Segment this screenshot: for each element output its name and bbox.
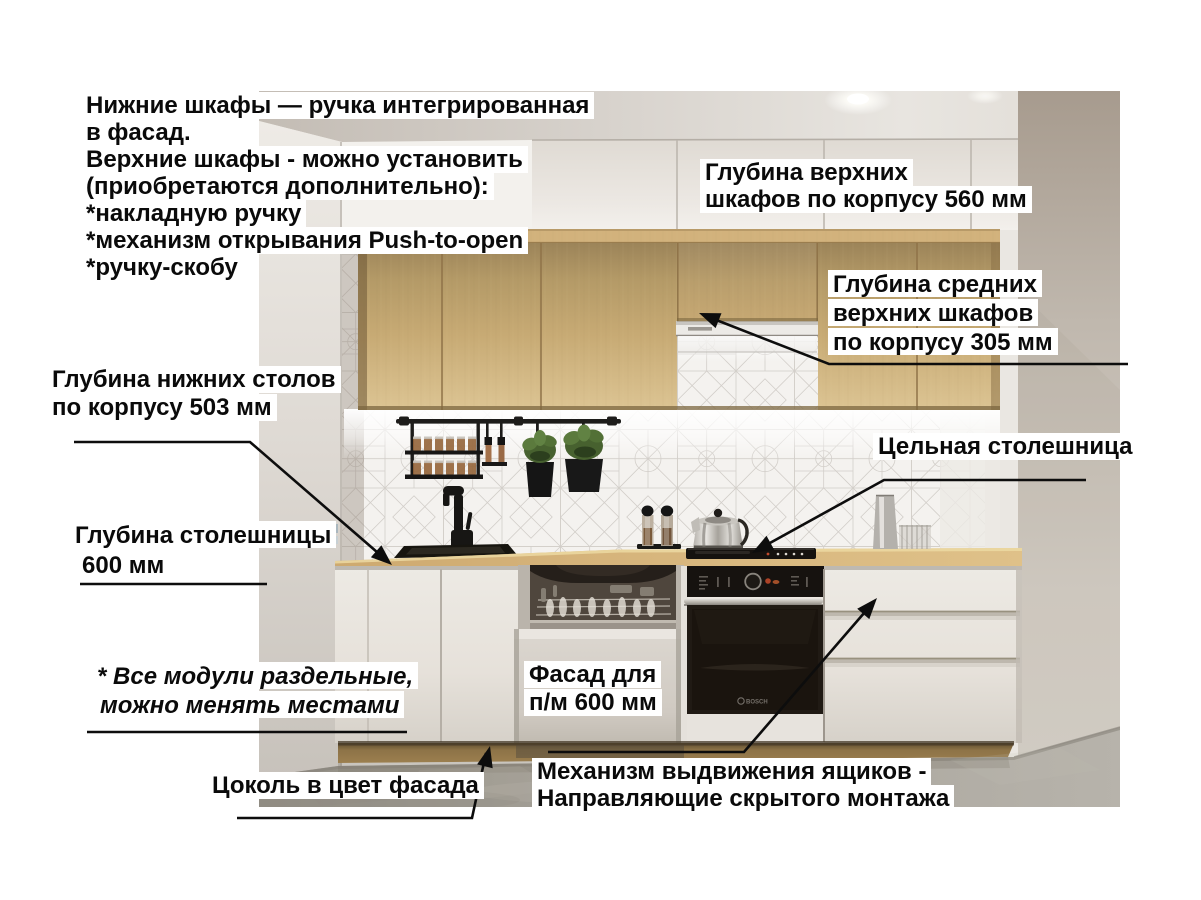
svg-text:BOSCH: BOSCH	[746, 700, 768, 706]
